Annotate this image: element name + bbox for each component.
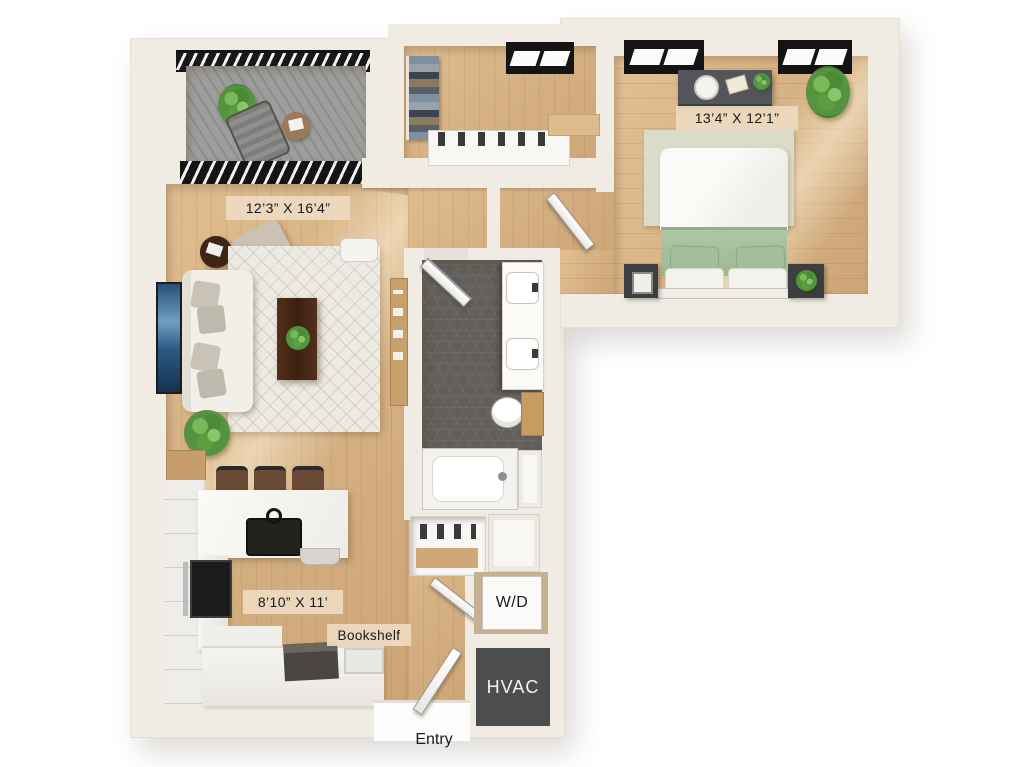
dresser-tray xyxy=(694,75,719,100)
kitchen-dimension-label: 8’10” X 11’ xyxy=(243,590,343,614)
bookshelf-label: Bookshelf xyxy=(327,624,411,646)
floorplan-canvas: W/D HVAC 12’3” X 16’4” 13’4” X 12’1” 8’1… xyxy=(0,0,1023,767)
entry-closet-floor xyxy=(416,548,478,568)
bedroom-window xyxy=(624,40,704,74)
bedroom-corner-plant xyxy=(806,66,850,118)
headboard xyxy=(656,288,794,299)
sink-faucet xyxy=(532,283,538,292)
entry-label: Entry xyxy=(404,730,464,750)
window-pane xyxy=(663,49,698,65)
hvac-label: HVAC xyxy=(487,677,540,698)
sofa-pillow xyxy=(196,368,227,399)
dishwasher xyxy=(300,548,340,565)
bedroom-dimension-label: 13’4” X 12’1” xyxy=(676,106,798,130)
laptop xyxy=(283,642,339,682)
washer-dryer-unit: W/D xyxy=(482,576,542,630)
dresser-plant xyxy=(753,73,770,90)
sink-faucet xyxy=(532,349,538,358)
window-pane xyxy=(629,49,664,65)
bathroom-wood-cabinet xyxy=(521,392,544,436)
bed-duvet xyxy=(660,148,788,230)
entry-closet-shoes xyxy=(420,524,476,539)
upper-cabinet xyxy=(166,450,206,482)
hvac-closet: HVAC xyxy=(476,648,550,726)
coffee-table-plant xyxy=(286,326,310,350)
closet-window xyxy=(506,42,574,74)
window-pane xyxy=(540,51,571,66)
hallway-wall-stub xyxy=(487,186,500,254)
bedroom-window xyxy=(778,40,852,74)
stove xyxy=(190,560,232,618)
sofa-pillow xyxy=(196,304,226,334)
bedroom-floor-extension xyxy=(558,250,614,294)
closet-shoes xyxy=(438,132,548,146)
closet-desk xyxy=(548,114,600,136)
window-pane xyxy=(814,49,847,65)
tub-faucet xyxy=(498,472,507,481)
bed-pillow-green xyxy=(736,245,786,271)
counter-tray xyxy=(344,648,384,674)
oven-handle xyxy=(183,562,188,616)
window-pane xyxy=(510,51,541,66)
ottoman xyxy=(340,238,378,262)
bed-pillow-green xyxy=(670,245,720,271)
window-pane xyxy=(782,49,815,65)
closet-clothes-rack xyxy=(406,56,439,140)
sink-faucet xyxy=(266,508,282,524)
living-room-dimension-label: 12’3” X 16’4” xyxy=(226,196,350,220)
washer-dryer-label: W/D xyxy=(496,594,529,612)
linen-closet-door xyxy=(518,450,542,508)
bathtub-basin xyxy=(432,456,504,502)
utility-cabinet xyxy=(488,514,540,572)
toilet xyxy=(491,397,524,428)
nightstand-plant xyxy=(796,270,817,291)
nightstand-frame xyxy=(632,272,653,294)
wall-artwork xyxy=(156,282,182,394)
media-console-items xyxy=(393,290,403,360)
